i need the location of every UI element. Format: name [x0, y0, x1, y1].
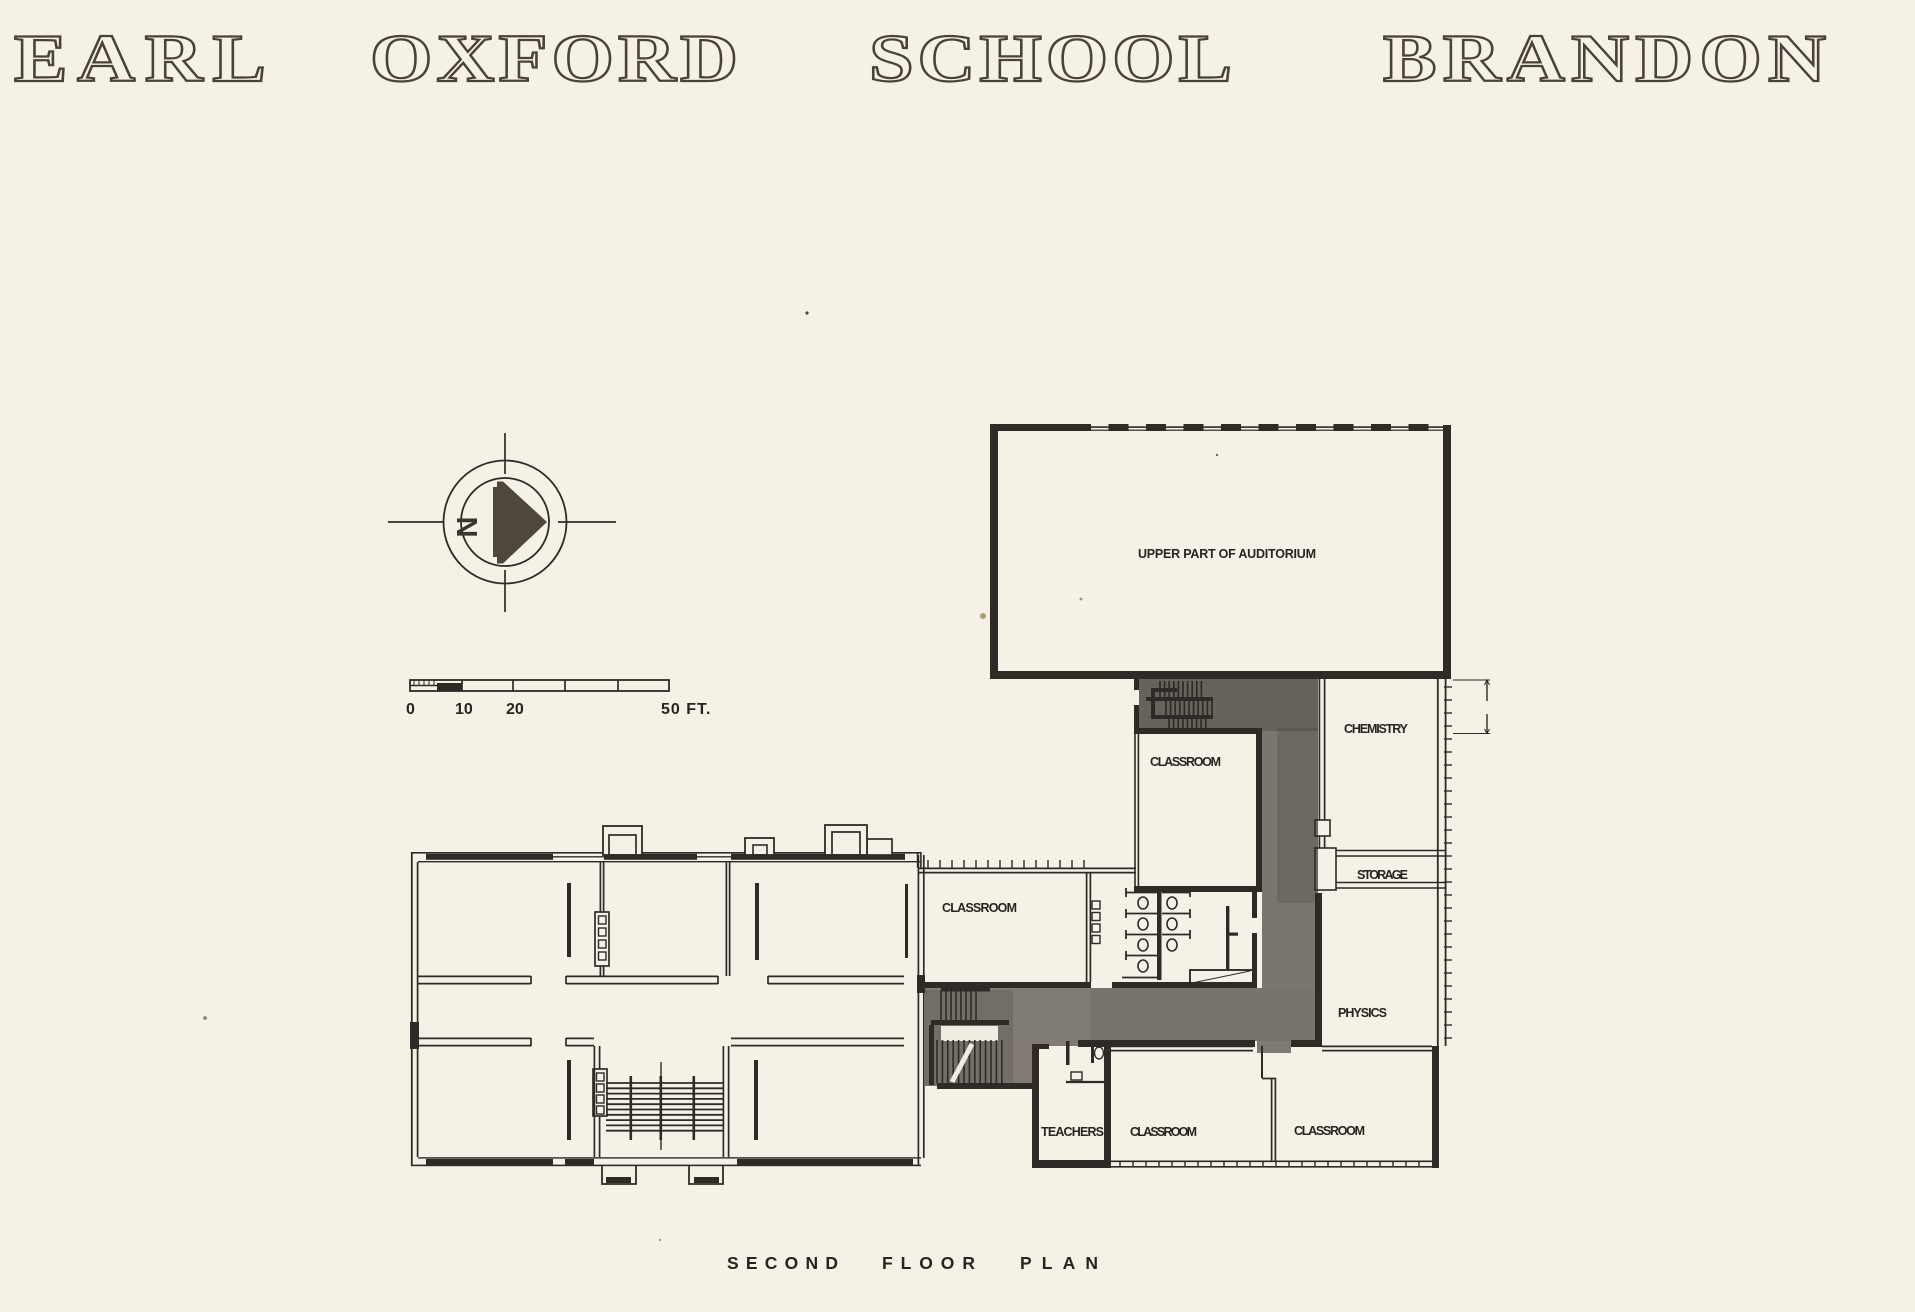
svg-text:BRANDON: BRANDON	[1383, 22, 1826, 97]
svg-text:CLASSROOM: CLASSROOM	[1150, 755, 1221, 769]
svg-text:OXFORD: OXFORD	[370, 22, 738, 97]
svg-text:CHEMISTRY: CHEMISTRY	[1344, 722, 1409, 736]
svg-text:CLASSROOM: CLASSROOM	[1294, 1124, 1365, 1138]
svg-text:UPPER PART OF AUDITORIUM: UPPER PART OF AUDITORIUM	[1138, 547, 1316, 561]
svg-text:50 FT.: 50 FT.	[661, 701, 711, 718]
svg-text:10: 10	[455, 701, 473, 718]
svg-text:SCHOOL: SCHOOL	[869, 22, 1232, 97]
svg-text:PHYSICS: PHYSICS	[1338, 1006, 1387, 1020]
svg-text:STORAGE: STORAGE	[1357, 868, 1408, 882]
svg-text:N: N	[452, 517, 484, 538]
svg-text:TEACHERS: TEACHERS	[1041, 1125, 1104, 1139]
svg-text:0: 0	[406, 701, 415, 718]
svg-text:20: 20	[506, 701, 524, 718]
svg-text:CLASSROOM: CLASSROOM	[942, 901, 1017, 915]
svg-text:CLASSROOM: CLASSROOM	[1130, 1125, 1197, 1139]
